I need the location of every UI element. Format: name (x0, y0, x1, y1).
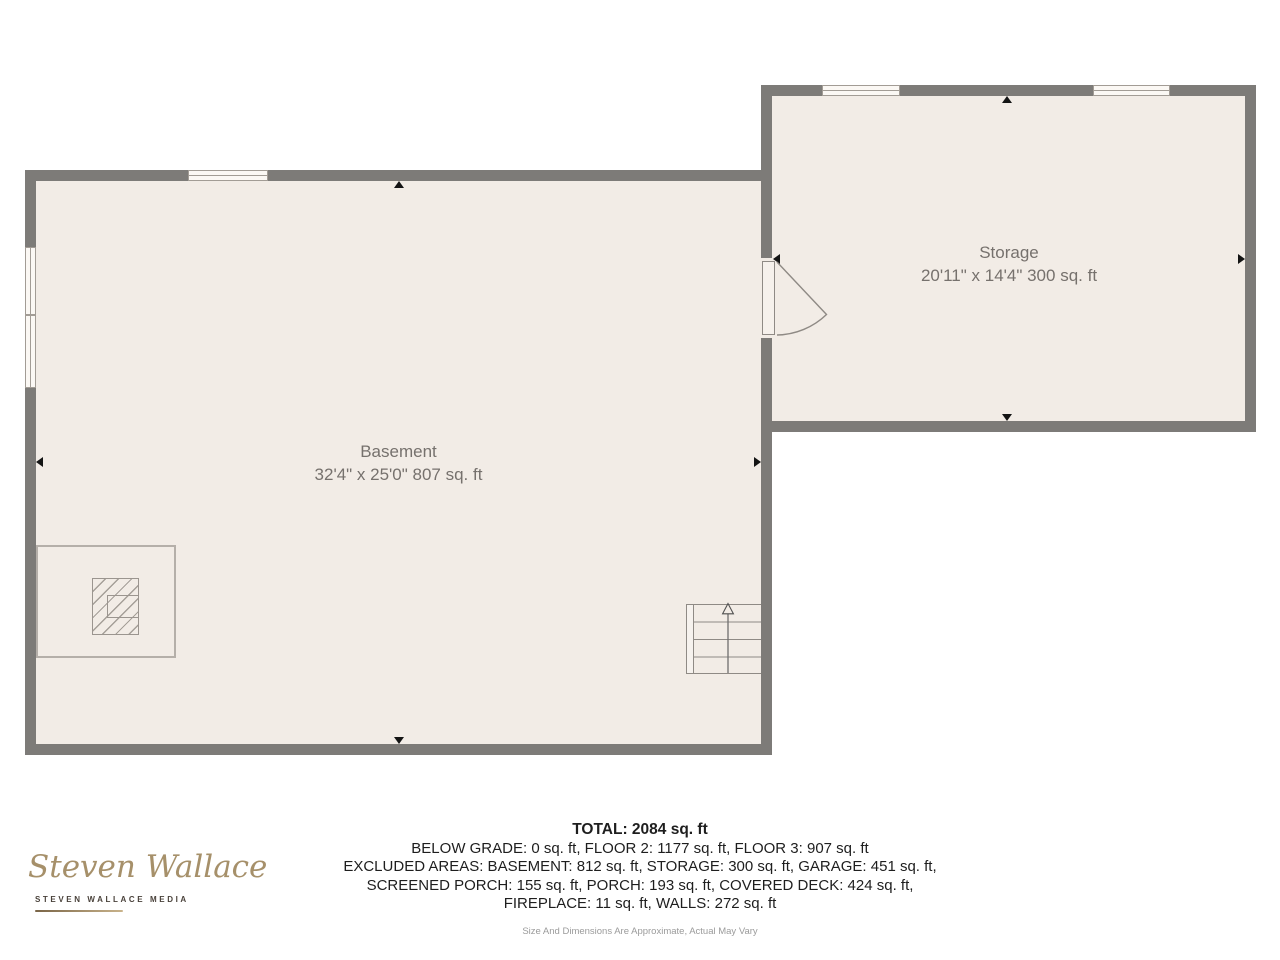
storage-room-label: Storage 20'11" x 14'4" 300 sq. ft (773, 241, 1245, 287)
floorplan-page: Basement 32'4" x 25'0" 807 sq. ft Storag… (0, 0, 1280, 960)
logo-script-text: Steven Wallace (28, 841, 198, 893)
basement-room-label: Basement 32'4" x 25'0" 807 sq. ft (36, 440, 761, 486)
window (822, 85, 900, 96)
window (25, 315, 36, 388)
wall-midpoint-arrow-icon (1002, 414, 1012, 421)
fireplace-firebox-outline (107, 595, 139, 618)
basement-bottom-wall (25, 744, 772, 755)
window (1093, 85, 1170, 96)
room-dimensions: 32'4" x 25'0" 807 sq. ft (36, 463, 761, 486)
room-name: Basement (36, 440, 761, 463)
basement-top-wall (25, 170, 772, 181)
wall-midpoint-arrow-icon (1002, 96, 1012, 103)
window (25, 247, 36, 315)
staircase (693, 604, 762, 674)
storage-bottom-wall (772, 421, 1256, 432)
wall-midpoint-arrow-icon (394, 737, 404, 744)
disclaimer-text: Size And Dimensions Are Approximate, Act… (0, 923, 1280, 942)
window (188, 170, 268, 181)
total-area: TOTAL: 2084 sq. ft (0, 821, 1280, 840)
shared-right-wall (761, 85, 772, 755)
photographer-logo: Steven Wallace STEVEN WALLACE MEDIA (28, 841, 198, 912)
storage-right-wall (1245, 85, 1256, 432)
wall-midpoint-arrow-icon (394, 181, 404, 188)
room-dimensions: 20'11" x 14'4" 300 sq. ft (773, 264, 1245, 287)
room-name: Storage (773, 241, 1245, 264)
logo-subtext: STEVEN WALLACE MEDIA (28, 895, 198, 904)
logo-underline (35, 910, 123, 912)
